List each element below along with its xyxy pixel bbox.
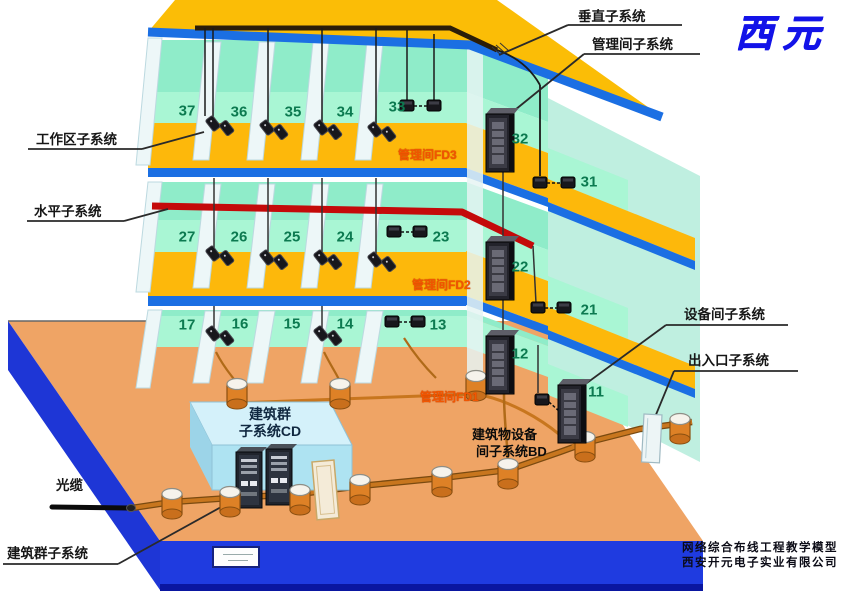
manhole-cylinder [162, 489, 182, 520]
room-number: 37 [179, 103, 196, 120]
nameplate [212, 546, 260, 568]
xiyuan-logo: 西元 [735, 2, 829, 57]
manufacturer-line1: 网络综合布线工程教学模型 [655, 541, 860, 556]
manufacturer-text: 网络综合布线工程教学模型 西安开元电子实业有限公司 [655, 541, 860, 570]
label-vertical-subsystem: 垂直子系统 [578, 5, 646, 25]
floor-tag-fd2: 管理间FD2 [412, 276, 471, 293]
side-door [641, 414, 661, 463]
room-number: 22 [512, 259, 529, 276]
room-number: 27 [179, 229, 196, 246]
room-number: 17 [179, 317, 196, 334]
fd-riser-column [466, 37, 548, 380]
manhole-cylinder [432, 467, 452, 498]
floor-tag-fd3: 管理间FD3 [398, 146, 457, 163]
main-building-block [148, 40, 466, 347]
diagram-artwork [0, 0, 860, 600]
room-number: 23 [433, 229, 450, 246]
riser-shaft [467, 40, 483, 380]
room-number: 26 [231, 229, 248, 246]
room-number: 31 [581, 174, 598, 191]
label-equipment-room-subsystem: 设备间子系统 [684, 303, 765, 323]
manhole-cylinder [498, 459, 518, 490]
room-number: 12 [512, 346, 529, 363]
room-number: 24 [337, 229, 354, 246]
label-horizontal-subsystem: 水平子系统 [34, 200, 102, 220]
manhole-cylinder [220, 487, 240, 518]
room-number: 32 [512, 131, 529, 148]
room-number: 36 [231, 104, 248, 121]
room-number: 13 [430, 317, 447, 334]
room-number: 16 [232, 316, 249, 333]
cd-box-label-line2: 子系统CD [200, 421, 340, 441]
manufacturer-line2: 西安开元电子实业有限公司 [655, 556, 860, 571]
floor-tag-fd1: 管理间FD1 [420, 388, 479, 405]
manhole-cylinder [290, 485, 310, 516]
server-rack-1 [236, 447, 267, 508]
room-number: 21 [581, 302, 598, 319]
label-work-area-subsystem: 工作区子系统 [36, 128, 117, 148]
label-optical-cable: 光缆 [56, 474, 83, 494]
room-number: 11 [588, 384, 604, 401]
room-number: 15 [284, 316, 301, 333]
room-number: 25 [284, 229, 301, 246]
bd-cabinet [558, 379, 591, 443]
manhole-cylinder [670, 414, 690, 445]
room-number: 34 [337, 104, 354, 121]
cabling-model-diagram: 西元 垂直子系统 管理间子系统 工作区子系统 水平子系统 设备间子系统 出入口子… [0, 0, 860, 600]
label-campus-subsystem: 建筑群子系统 [7, 542, 88, 562]
manhole-cylinder [350, 475, 370, 506]
room-number: 33 [389, 99, 406, 116]
label-entrance-subsystem: 出入口子系统 [688, 349, 769, 369]
room-number: 14 [337, 316, 354, 333]
entrance-door [312, 460, 339, 520]
bd-label-line2: 间子系统BD [476, 441, 547, 460]
room-number: 35 [285, 104, 302, 121]
label-management-room-subsystem: 管理间子系统 [592, 33, 673, 53]
